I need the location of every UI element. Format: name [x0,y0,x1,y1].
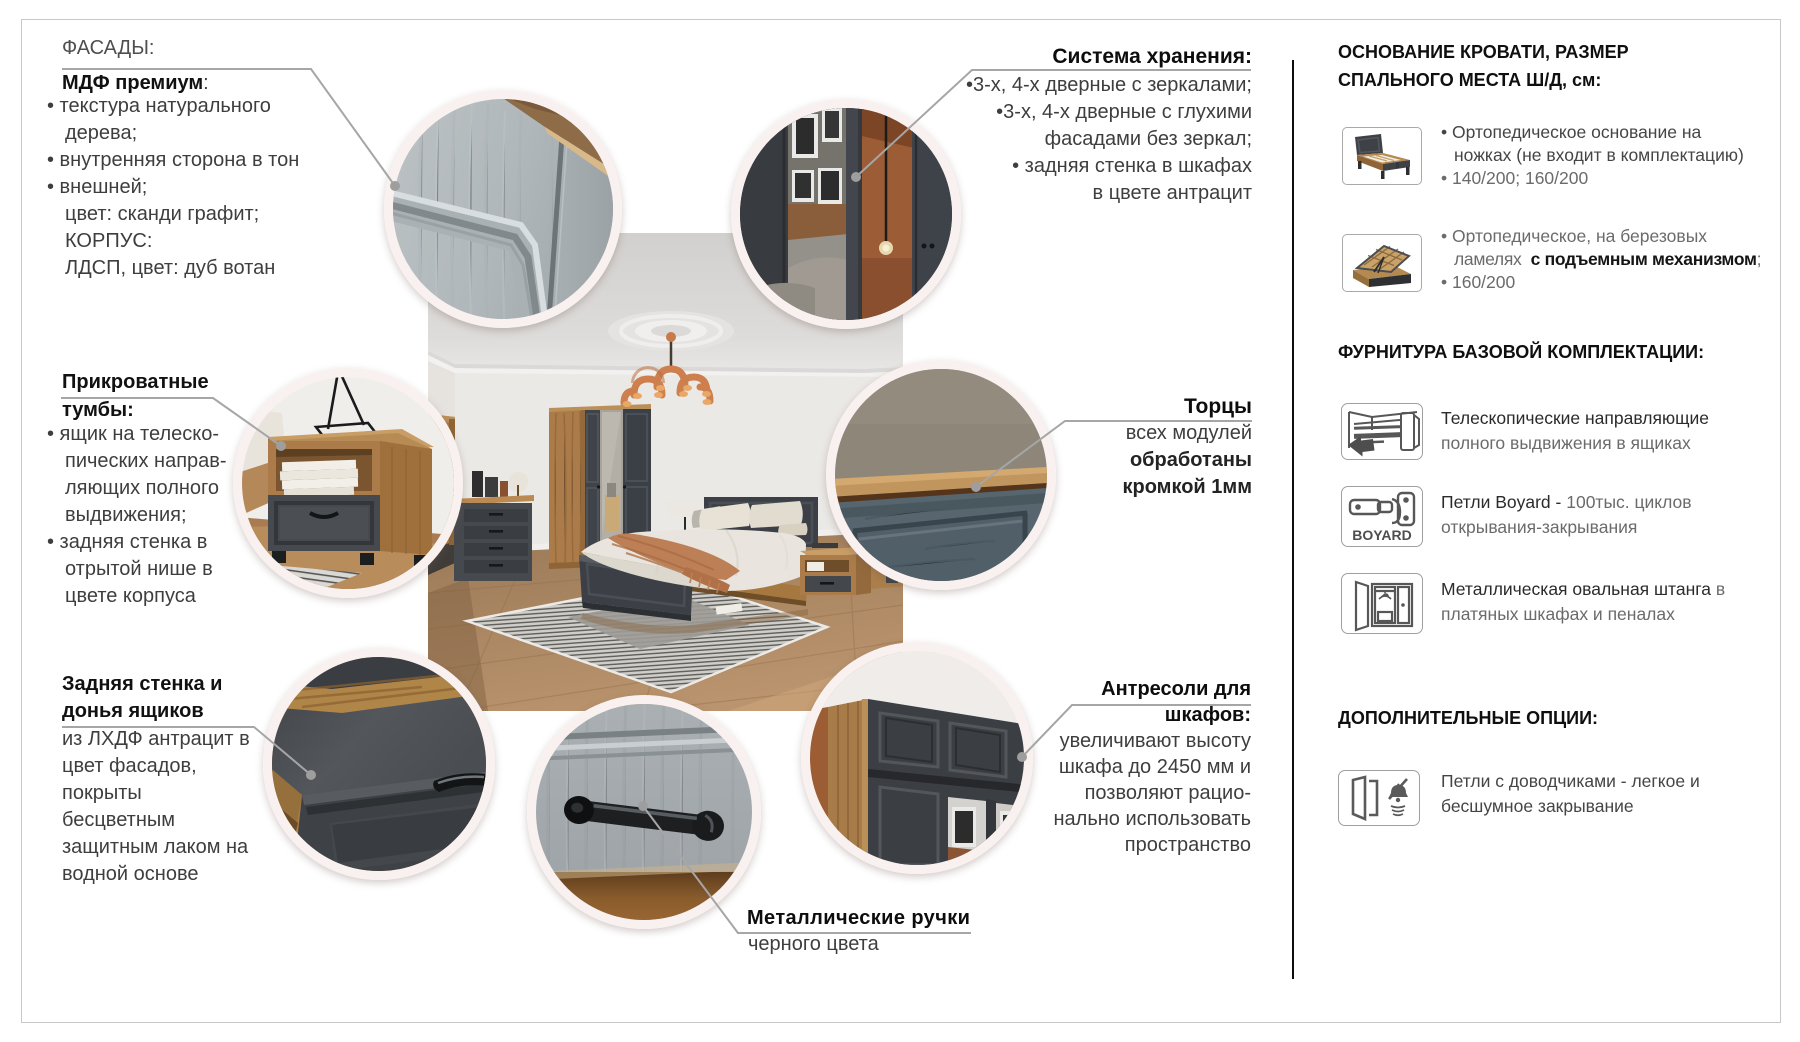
svg-text:BOYARD: BOYARD [1352,527,1411,543]
